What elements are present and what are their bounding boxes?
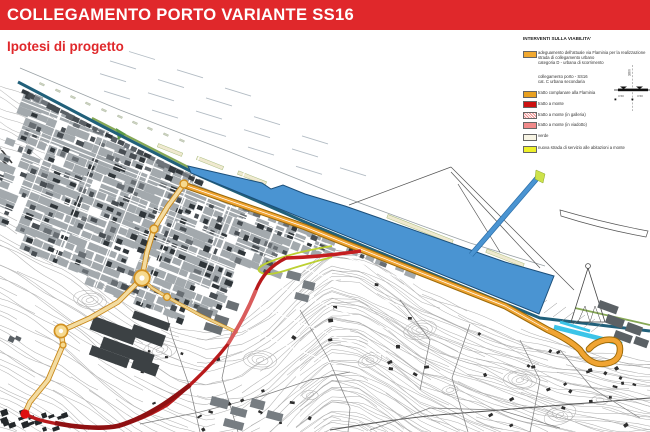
svg-text:3.50: 3.50 [637,94,643,98]
svg-text:30m: 30m [628,69,632,76]
svg-text:3.50: 3.50 [618,94,624,98]
